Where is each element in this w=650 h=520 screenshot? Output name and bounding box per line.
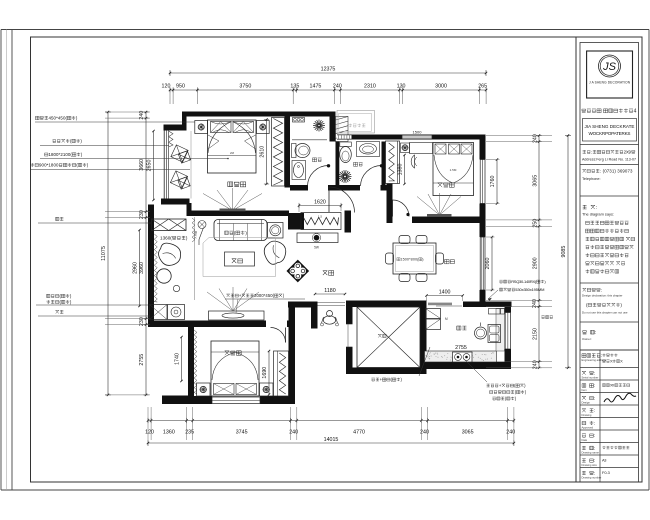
svg-text:Do not use this chapter can no: Do not use this chapter can not use — [582, 311, 628, 315]
svg-text:2060: 2060 — [485, 257, 491, 269]
svg-text:3960: 3960 — [139, 262, 145, 274]
svg-text:1.5M: 1.5M — [450, 168, 457, 172]
svg-text:Address:Ferg Li Road No. 113-0: Address:Ferg Li Road No. 113-07 — [582, 158, 636, 162]
svg-text::: : — [594, 409, 595, 414]
svg-text::: : — [591, 150, 592, 155]
svg-text:240: 240 — [333, 84, 342, 90]
svg-text:135: 135 — [290, 84, 299, 90]
svg-text:3065: 3065 — [462, 430, 474, 436]
svg-text:14015: 14015 — [324, 437, 339, 443]
svg-text:Approved: Approved — [582, 426, 594, 430]
svg-text:Drawing number: Drawing number — [582, 476, 602, 480]
svg-text:Drawing: Drawing — [582, 413, 592, 417]
svg-text:WOCKRPOPATERKS: WOCKRPOPATERKS — [589, 131, 631, 136]
svg-text:2610: 2610 — [259, 146, 265, 158]
svg-text:3750: 3750 — [239, 84, 251, 90]
svg-text:1800*2100(: 1800*2100( — [49, 152, 73, 157]
svg-text:2960: 2960 — [132, 262, 138, 274]
svg-text:12375: 12375 — [321, 67, 336, 73]
svg-text::: : — [594, 384, 595, 389]
svg-text:1180: 1180 — [324, 288, 335, 294]
svg-text:1475: 1475 — [310, 84, 322, 90]
svg-text:F0-3: F0-3 — [602, 470, 610, 475]
svg-text::: : — [594, 397, 595, 402]
svg-text:XX: XX — [610, 383, 615, 388]
svg-text:JIA SHENG DECKRATE: JIA SHENG DECKRATE — [585, 124, 635, 129]
svg-text:Date: Date — [582, 438, 588, 442]
svg-text::: : — [601, 288, 602, 293]
svg-text:A3: A3 — [602, 458, 606, 463]
svg-text:2755: 2755 — [455, 345, 467, 351]
svg-text:11075: 11075 — [101, 246, 107, 261]
svg-text:X: X — [610, 359, 613, 364]
svg-text:Drawing name: Drawing name — [582, 451, 600, 455]
svg-text:Owner:: Owner: — [582, 337, 592, 341]
svg-text:The diagram says:: The diagram says: — [582, 212, 614, 217]
svg-text:1500: 1500 — [413, 130, 423, 135]
svg-text:1500*800(: 1500*800( — [400, 258, 419, 262]
svg-text:450*450(: 450*450( — [49, 116, 68, 121]
svg-text:Serial number: Serial number — [582, 376, 599, 380]
svg-text:Item: Item — [582, 388, 588, 392]
svg-text:2900: 2900 — [532, 257, 538, 269]
svg-text:Design: Design — [582, 401, 591, 405]
svg-text:2310: 2310 — [364, 84, 376, 90]
svg-text:9085: 9085 — [561, 246, 567, 258]
svg-text:3065: 3065 — [532, 175, 538, 187]
svg-text:4770: 4770 — [353, 430, 365, 436]
svg-text:2X9: 2X9 — [624, 150, 632, 155]
svg-text:1.5: 1.5 — [318, 215, 323, 219]
svg-text:1620: 1620 — [314, 200, 326, 206]
svg-text:2000*450(: 2000*450( — [254, 293, 275, 298]
svg-text::: : — [595, 330, 596, 336]
svg-text:3000: 3000 — [435, 84, 447, 90]
svg-text:X: X — [620, 359, 623, 364]
svg-text:2755: 2755 — [139, 354, 145, 366]
svg-text::: : — [594, 434, 595, 439]
svg-text:5W: 5W — [314, 246, 319, 250]
svg-text:1400: 1400 — [439, 290, 451, 296]
svg-text:1740: 1740 — [174, 353, 180, 365]
svg-text:3660: 3660 — [139, 159, 145, 171]
svg-text:950: 950 — [176, 84, 185, 90]
svg-text:2M: 2M — [230, 151, 235, 155]
svg-text:120: 120 — [162, 84, 171, 90]
svg-text:Engineering address: Engineering address — [582, 358, 607, 362]
svg-text:RSQ30-140RX(: RSQ30-140RX( — [511, 279, 537, 284]
svg-text:M: M — [445, 317, 448, 321]
svg-text::: : — [596, 205, 597, 211]
svg-text:J A SHENG DECORATION: J A SHENG DECORATION — [589, 81, 631, 85]
svg-text:1380: 1380 — [397, 163, 403, 175]
svg-text:120: 120 — [145, 430, 154, 436]
svg-text:130: 130 — [397, 84, 406, 90]
svg-text:265: 265 — [478, 84, 487, 90]
svg-text:3745: 3745 — [236, 430, 248, 436]
svg-text:1360: 1360 — [163, 430, 175, 436]
svg-text:530x350x195MM: 530x350x195MM — [515, 287, 544, 292]
svg-text:: (0731) 369073: : (0731) 369073 — [600, 169, 633, 174]
svg-text:1360(: 1360( — [160, 236, 172, 241]
svg-text:Design declaration: this chapt: Design declaration: this chapter — [582, 294, 623, 298]
svg-text:4: 4 — [634, 109, 637, 115]
svg-text::: : — [594, 422, 595, 427]
svg-text:1760: 1760 — [490, 175, 496, 187]
svg-text:900*1800: 900*1800 — [39, 163, 59, 168]
svg-text:Drawing size: Drawing size — [582, 463, 598, 467]
svg-text:JS: JS — [602, 61, 617, 73]
svg-text:2150: 2150 — [532, 328, 538, 340]
svg-text:Telephone:: Telephone: — [582, 177, 601, 181]
svg-text:1690: 1690 — [262, 367, 268, 379]
